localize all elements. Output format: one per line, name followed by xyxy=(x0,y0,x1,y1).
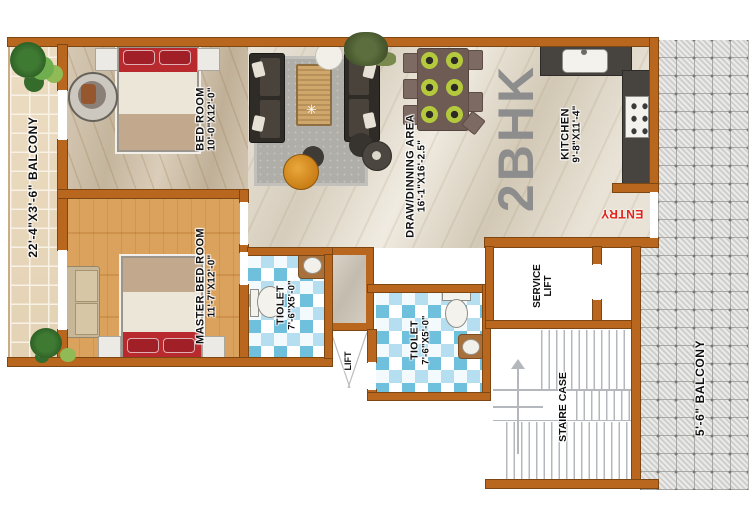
coffee-table: ✳ xyxy=(296,64,332,126)
door-opening xyxy=(58,90,67,140)
wall xyxy=(8,38,658,46)
dining-chair xyxy=(403,53,418,73)
wall xyxy=(8,358,332,366)
wall xyxy=(240,245,248,252)
floor-plan: ✳ xyxy=(0,0,755,532)
master-bed-pillow xyxy=(127,338,159,353)
sofa-left xyxy=(249,53,285,143)
wall xyxy=(325,255,332,358)
master-sofa xyxy=(66,266,100,338)
balcony-right-label: 5'-6" BALCONY xyxy=(693,340,707,436)
wall xyxy=(486,480,658,488)
wall xyxy=(593,247,601,264)
wall xyxy=(368,285,490,292)
stair-up-arrow-shaft xyxy=(517,368,519,454)
bed-pillow xyxy=(123,50,155,65)
stair-treads-upper xyxy=(541,330,636,390)
plant xyxy=(30,328,62,358)
wall xyxy=(58,190,248,198)
nightstand xyxy=(98,336,121,359)
master-bedroom-label: MASTER BED ROOM 11'-7"X12'-0" xyxy=(195,228,218,344)
service-lift-label: SERVICE LIFT xyxy=(532,264,554,308)
wall xyxy=(58,45,67,90)
kitchen-label: KITCHEN 9'-8"X11'-4" xyxy=(560,105,583,162)
wall xyxy=(486,321,638,328)
dining-plate xyxy=(446,106,463,123)
balcony-left-label: 22'-4"X3'-6" BALCONY xyxy=(26,116,40,257)
toilet-sink xyxy=(298,252,327,279)
wall xyxy=(485,238,658,247)
stool-dark xyxy=(362,141,392,171)
nightstand xyxy=(197,48,220,71)
wall xyxy=(368,330,376,362)
toilet-1-label: TIOLET 7'-6"X5'-0" xyxy=(275,280,298,330)
stool-orange xyxy=(283,154,319,190)
table-star-decor: ✳ xyxy=(306,102,317,118)
round-side-table xyxy=(315,42,343,70)
plant xyxy=(344,32,388,66)
bed-pillow xyxy=(159,50,191,65)
entry-door-opening xyxy=(650,192,658,238)
master-bed-pillow xyxy=(163,338,195,353)
wall xyxy=(240,285,248,360)
door-opening xyxy=(58,250,67,330)
dining-chair xyxy=(468,50,483,70)
plant xyxy=(10,42,46,78)
wall xyxy=(240,190,248,202)
nightstand xyxy=(95,48,118,71)
toilet-bowl xyxy=(445,299,468,328)
dining-plate xyxy=(446,52,463,69)
dining-chair xyxy=(403,79,418,99)
wall xyxy=(248,248,332,255)
toilet-2-label: TIOLET 7'-6"X5'-0" xyxy=(409,315,432,365)
bedroom-label: BED ROOM 10'-0"X12'-0" xyxy=(195,87,218,151)
stair-treads-lower xyxy=(506,422,636,480)
stair-up-arrow-head xyxy=(511,359,525,369)
wall xyxy=(368,393,490,400)
lift-shaft xyxy=(325,248,373,330)
dining-plate xyxy=(421,52,438,69)
entry-label: ENTRY xyxy=(601,207,644,221)
wall xyxy=(632,247,640,488)
wall xyxy=(650,38,658,192)
lift-label: LIFT xyxy=(343,352,353,371)
wall xyxy=(613,184,658,192)
dining-chair xyxy=(468,92,483,112)
wall xyxy=(486,247,493,328)
papasan-pillow xyxy=(81,84,96,104)
dining-plate xyxy=(446,79,463,96)
dining-plate xyxy=(421,79,438,96)
stair-treads-middle xyxy=(576,391,636,420)
unit-type-label: 2BHK xyxy=(487,64,545,212)
kitchen-stove xyxy=(625,96,649,138)
door-opening xyxy=(368,362,376,390)
door-opening xyxy=(240,202,248,245)
door-opening xyxy=(593,264,601,300)
staircase-label: STAIRE CASE xyxy=(557,372,569,442)
toilet-sink xyxy=(458,334,484,359)
door-opening xyxy=(240,252,248,285)
draw-dining-label: DRAW/DINNING AREA 16'-1"X16'-2.5" xyxy=(405,114,428,238)
kitchen-sink xyxy=(562,49,608,73)
